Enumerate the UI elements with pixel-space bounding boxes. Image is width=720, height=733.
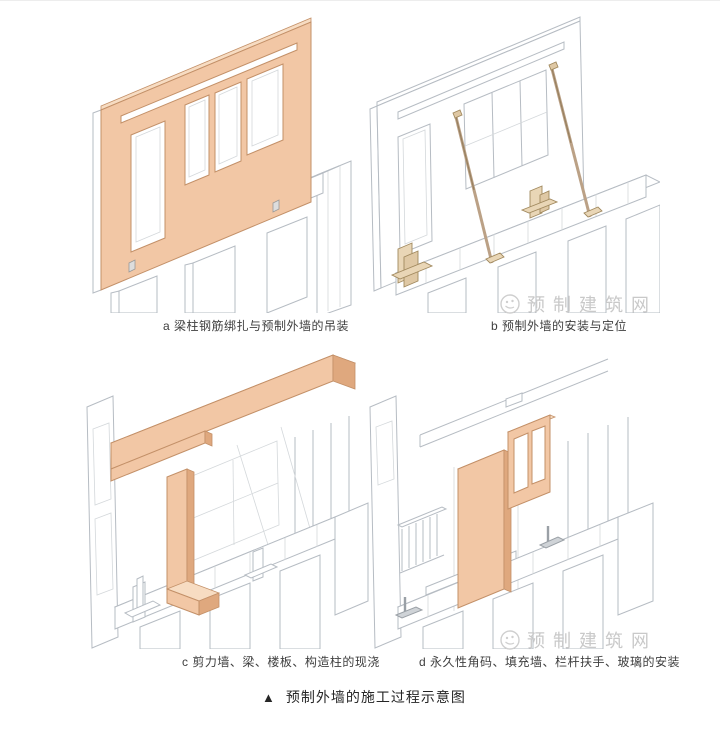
brace-line (237, 445, 273, 561)
watermark-text: 预制建筑网 (527, 627, 657, 653)
cast-beam-end (333, 355, 355, 389)
watermark-top: 预制建筑网 (499, 291, 657, 317)
figure-title: ▲预制外墙的施工过程示意图 (262, 687, 466, 707)
panel-b-positioning (368, 5, 660, 313)
caption-panel-c: c 剪力墙、梁、楼板、构造柱的现浇 (182, 653, 380, 670)
watermark-bottom: 预制建筑网 (499, 627, 657, 653)
cast-column (167, 469, 187, 595)
watermark-logo-icon (499, 629, 521, 651)
window-infill-panel (508, 415, 555, 509)
panel-c-cast-in-place (85, 349, 370, 649)
diagram-b-positioning-drawing (368, 5, 660, 313)
figure-title-text: 预制外墙的施工过程示意图 (286, 689, 466, 705)
infill-wall-panel (458, 450, 511, 608)
glass-pane (514, 433, 528, 493)
watermark-text: 预制建筑网 (527, 291, 657, 317)
panel-a-hoisting (85, 5, 357, 313)
brace-line (281, 427, 313, 539)
diagram-a-hoisting-drawing (85, 5, 357, 313)
diagram-c-cast-in-place-drawing (85, 349, 370, 649)
caption-panel-b: b 预制外墙的安装与定位 (491, 317, 627, 334)
article-page: { "figure": { "panels": [ { "id": "a", "… (0, 0, 720, 733)
cast-beam-front (111, 355, 333, 469)
panel-d-finishing (368, 349, 663, 649)
watermark-logo-icon (499, 293, 521, 315)
caption-panel-a: a 梁柱钢筋绑扎与预制外墙的吊装 (163, 317, 349, 334)
caption-panel-d: d 永久性角码、填充墙、栏杆扶手、玻璃的安装 (419, 653, 680, 670)
railing (398, 507, 446, 573)
floor-structure (115, 503, 368, 649)
glass-pane (532, 426, 545, 484)
triangle-marker-icon: ▲ (262, 690, 276, 705)
diagram-d-finishing-drawing (368, 349, 663, 649)
